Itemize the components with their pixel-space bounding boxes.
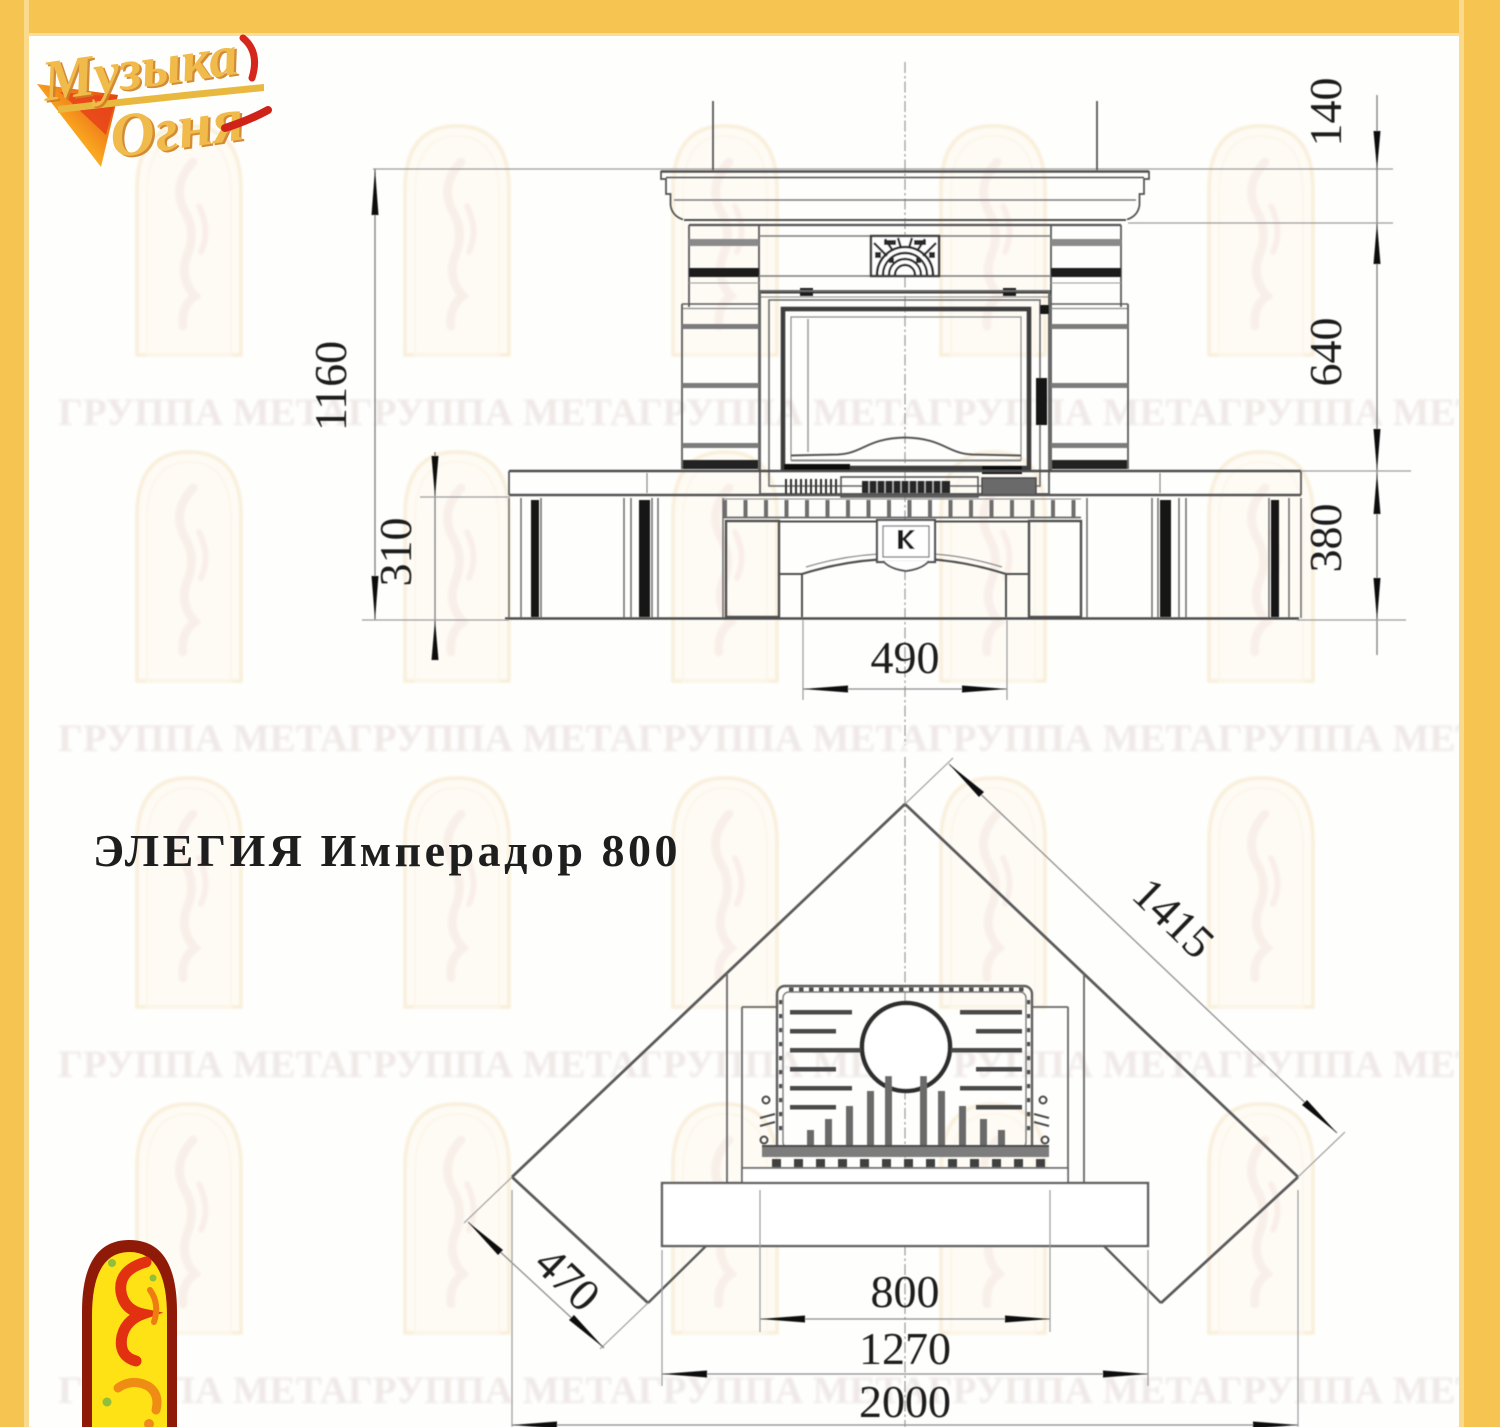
- svg-text:ГРУППА МЕТАГРУППА МЕТАГРУППА М: ГРУППА МЕТАГРУППА МЕТАГРУППА МЕТАГРУППА …: [58, 1043, 1500, 1086]
- svg-text:ГРУППА МЕТАГРУППА МЕТАГРУППА М: ГРУППА МЕТАГРУППА МЕТАГРУППА МЕТАГРУППА …: [58, 391, 1500, 434]
- svg-text:640: 640: [1300, 318, 1351, 387]
- svg-text:310: 310: [370, 518, 421, 587]
- svg-text:140: 140: [1300, 78, 1351, 147]
- svg-text:800: 800: [871, 1266, 940, 1317]
- svg-text:2000: 2000: [859, 1376, 951, 1427]
- svg-text:490: 490: [871, 632, 940, 683]
- svg-text:ЭЛЕГИЯ Имперадор 800: ЭЛЕГИЯ Имперадор 800: [93, 825, 681, 876]
- svg-text:ГРУППА МЕТАГРУППА МЕТАГРУППА М: ГРУППА МЕТАГРУППА МЕТАГРУППА МЕТАГРУППА …: [58, 1369, 1500, 1412]
- svg-text:380: 380: [1300, 504, 1351, 573]
- svg-text:ГРУППА МЕТАГРУППА МЕТАГРУППА М: ГРУППА МЕТАГРУППА МЕТАГРУППА МЕТАГРУППА …: [58, 717, 1500, 760]
- svg-text:1160: 1160: [305, 341, 356, 431]
- svg-text:1270: 1270: [859, 1323, 951, 1374]
